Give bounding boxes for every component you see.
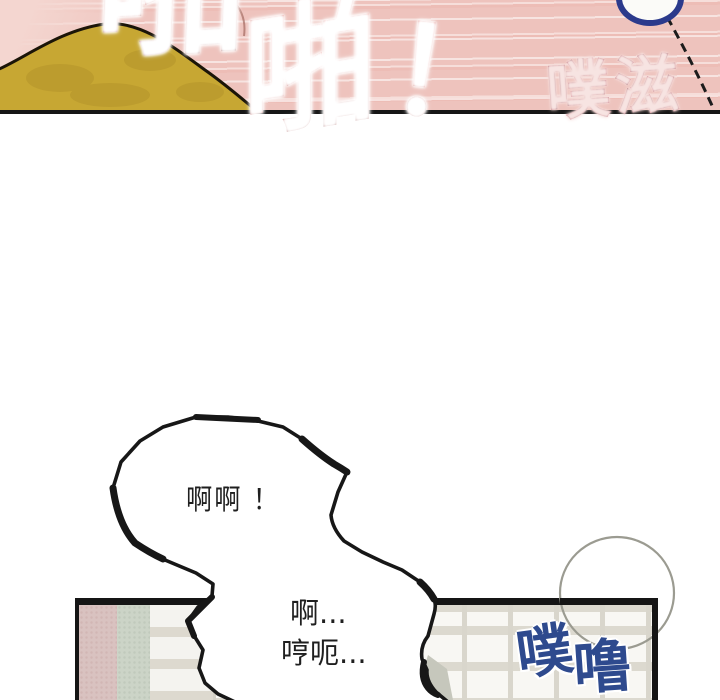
sfx-pa-second: 啪 bbox=[243, 0, 377, 152]
sfx-pa-large: 啪 bbox=[93, 0, 250, 72]
sfx-pulu-char2: 噜 bbox=[570, 618, 634, 700]
bubble2-line1: 啊... bbox=[290, 590, 347, 632]
sfx-pulu-char1: 噗 bbox=[511, 603, 578, 691]
wall-strip-pink bbox=[79, 605, 117, 700]
bubble2-line2: 哼呃... bbox=[281, 630, 367, 672]
sfx-exclamation: ！ bbox=[383, 5, 520, 147]
window-frame bbox=[150, 605, 216, 700]
bubble1-text: 啊啊 ！ bbox=[186, 478, 281, 518]
comic-page: 啪 啪 ！ 噗滋 啊啊 ！ 啊... 哼呃... 噗噜 bbox=[0, 0, 720, 700]
sfx-puzi: 噗滋 bbox=[544, 51, 686, 128]
sfx-pulu: 噗噜 bbox=[516, 604, 630, 688]
wall-strip-green bbox=[117, 605, 150, 700]
